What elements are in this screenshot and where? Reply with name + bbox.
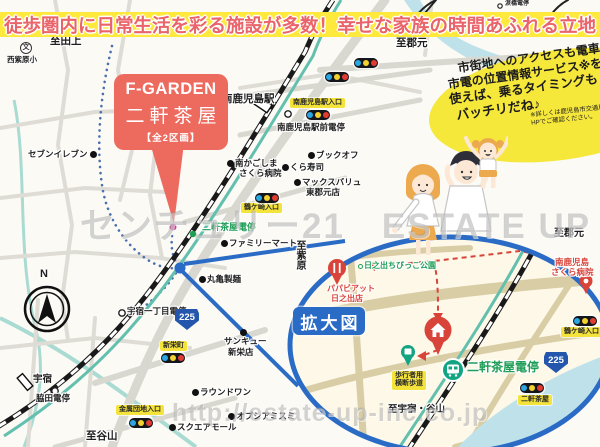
label-sankyu-2: 新栄店 bbox=[228, 348, 254, 357]
label-compass-north: N bbox=[40, 268, 48, 280]
label-kura-sushi: くら寿司 bbox=[282, 163, 324, 172]
map-flyer: 至田上 文 西紫原小 至郡元 涙橋電停 南鹿児島駅 南鹿児島駅前電停 セブンイレ… bbox=[0, 0, 600, 447]
property-name: 二軒茶屋 bbox=[120, 101, 221, 128]
label-minami-ekimae-stop: 南鹿児島駅前電停 bbox=[277, 123, 345, 132]
watermark-brand: センチュリー21 ESTATE UP bbox=[80, 198, 591, 249]
label-wakida-stop: 脇田電停 bbox=[36, 394, 70, 403]
chip-nikenjaya-crossing: 二軒茶屋 bbox=[518, 395, 552, 405]
chip-pedestrian-crossing: 歩行者用 横断歩道 bbox=[392, 371, 426, 390]
chip-minami-station-entrance: 南鹿児島駅入口 bbox=[290, 98, 345, 108]
traffic-light-icon bbox=[325, 72, 349, 82]
headline-banner: 徒歩圏内に日常生活を彩る施設が多数！幸せな家族の時間あふれる立地 bbox=[0, 12, 600, 37]
label-usuki-station: 宇宿 bbox=[33, 375, 52, 385]
park-dot-icon bbox=[358, 264, 363, 269]
poi-dot-icon bbox=[282, 164, 289, 171]
label-max-valu-1: マックスバリュ bbox=[294, 178, 361, 187]
traffic-light-icon bbox=[161, 353, 185, 363]
label-seven-eleven: セブンイレブン bbox=[28, 150, 97, 159]
poi-dot-icon bbox=[294, 179, 301, 186]
label-minami-kagoshima-station: 南鹿児島駅 bbox=[222, 94, 275, 106]
traffic-light-icon bbox=[520, 383, 544, 393]
label-sakura-hospital-1: 南かごしま bbox=[227, 159, 278, 168]
label-nikenjaya-stop-big: 二軒茶屋電停 bbox=[467, 361, 539, 374]
tram-stop-big-icon bbox=[442, 359, 464, 381]
poi-dot-icon bbox=[308, 152, 315, 159]
chip-tsurugasaki-entrance-circle: 鶴ケ崎入口 bbox=[561, 327, 600, 337]
label-to-taniyama: 至谷山 bbox=[86, 431, 118, 443]
label-sakura-hospital-2: さくら病院 bbox=[239, 169, 282, 178]
poi-dot-icon bbox=[199, 276, 206, 283]
traffic-light-icon bbox=[573, 316, 597, 326]
station-marker-usuki bbox=[17, 374, 33, 391]
property-units: 【全2区画】 bbox=[142, 130, 201, 144]
label-sankyu-1: サンキュー bbox=[224, 337, 267, 346]
label-papabiatto-2: 日之出店 bbox=[331, 295, 363, 304]
label-mk-sakura-hospital-2: さくら病院 bbox=[551, 268, 594, 277]
label-to-tagami: 至田上 bbox=[50, 36, 82, 48]
label-book-off: ブックオフ bbox=[308, 151, 359, 160]
watermark-url: http://estate-up-inc.co.jp bbox=[172, 399, 488, 428]
enlarged-map-title: 拡大図 bbox=[293, 307, 365, 335]
label-max-valu-2: 東郡元店 bbox=[306, 188, 340, 197]
school-icon: 文 bbox=[20, 42, 32, 54]
label-round-one: ラウンドワン bbox=[192, 388, 251, 397]
label-to-korimoto-top: 至郡元 bbox=[396, 38, 428, 50]
traffic-light-icon bbox=[306, 110, 330, 120]
label-namidabashi-stop: 涙橋電停 bbox=[505, 1, 529, 8]
chip-shinei-cho: 新栄町 bbox=[160, 341, 187, 351]
property-brand: F-GARDEN bbox=[125, 80, 216, 99]
chip-kinzoku-danchi-entrance: 金属団地入口 bbox=[116, 405, 164, 415]
headline-text: 徒歩圏内に日常生活を彩る施設が多数！幸せな家族の時間あふれる立地 bbox=[4, 12, 596, 38]
label-nishi-murasakibaru-elem: 西紫原小 bbox=[7, 56, 37, 64]
property-callout-bubble: F-GARDEN 二軒茶屋 【全2区画】 bbox=[114, 74, 228, 150]
label-marugame-seimen: 丸亀製麺 bbox=[199, 275, 241, 284]
poi-dot-icon bbox=[240, 329, 247, 336]
poi-dot-icon bbox=[192, 389, 199, 396]
label-mk-sakura-hospital-1: 南鹿児島 bbox=[555, 258, 589, 267]
poi-dot-icon bbox=[227, 160, 234, 167]
traffic-light-icon bbox=[129, 418, 153, 428]
label-papabiatto-1: パパビアット bbox=[327, 285, 375, 294]
traffic-light-icon bbox=[354, 58, 378, 68]
label-hinode-park: 日之出ちびっこ公園 bbox=[358, 262, 436, 271]
poi-dot-icon bbox=[90, 151, 97, 158]
callout-anchor-dot bbox=[175, 263, 186, 274]
